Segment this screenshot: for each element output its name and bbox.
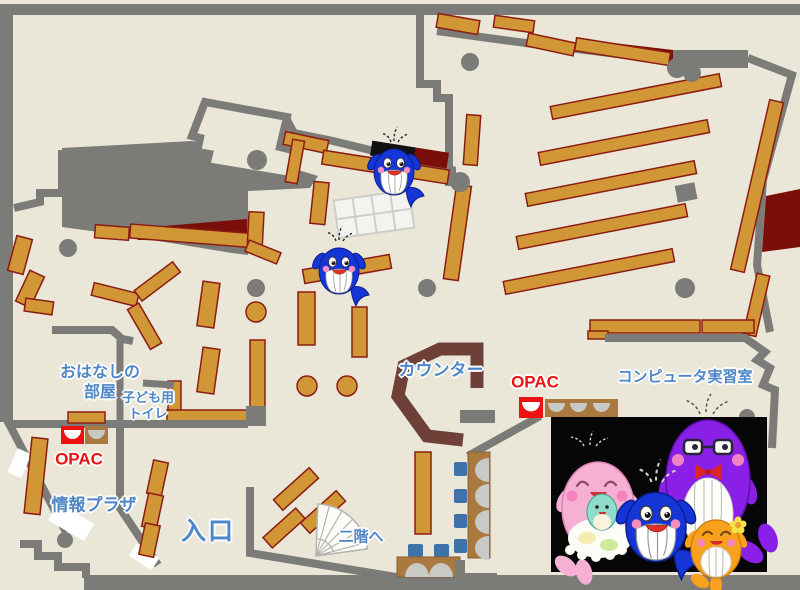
opac-right-terminal [519, 397, 618, 418]
label-kids-toilet: 子ども用 トイレ [122, 390, 174, 423]
label-text: OPAC [55, 449, 103, 468]
label-text: 部屋 [84, 384, 116, 401]
label-computer-room: コンピュータ実習室 [617, 369, 752, 388]
label-text: 情報プラザ [52, 495, 137, 514]
label-text: カウンター [399, 360, 484, 379]
counter-desk [460, 410, 495, 423]
label-opac-right: OPAC [511, 371, 559, 392]
label-text: おはなしの [60, 364, 140, 381]
label-text: コンピュータ実習室 [617, 369, 752, 386]
mascot-photo [551, 394, 782, 590]
label-info-plaza: 情報プラザ [52, 494, 137, 515]
label-stairs-up: 二階へ [338, 529, 383, 548]
label-text: トイレ [128, 406, 167, 421]
tilted-room [192, 102, 296, 180]
label-text: 子ども用 [122, 390, 174, 405]
label-text: OPAC [511, 372, 559, 391]
label-counter: カウンター [399, 359, 484, 380]
label-entrance: 入口 [181, 516, 235, 547]
library-floor-map: おはなしの 部屋 子ども用 トイレ OPAC 情報プラザ 入口 カウンター OP… [0, 0, 800, 590]
label-opac-left: OPAC [55, 448, 103, 469]
label-text: 二階へ [338, 529, 383, 546]
teal-baby-whale-icon [587, 494, 617, 530]
pillar [247, 150, 267, 170]
label-text: 入口 [181, 517, 235, 545]
